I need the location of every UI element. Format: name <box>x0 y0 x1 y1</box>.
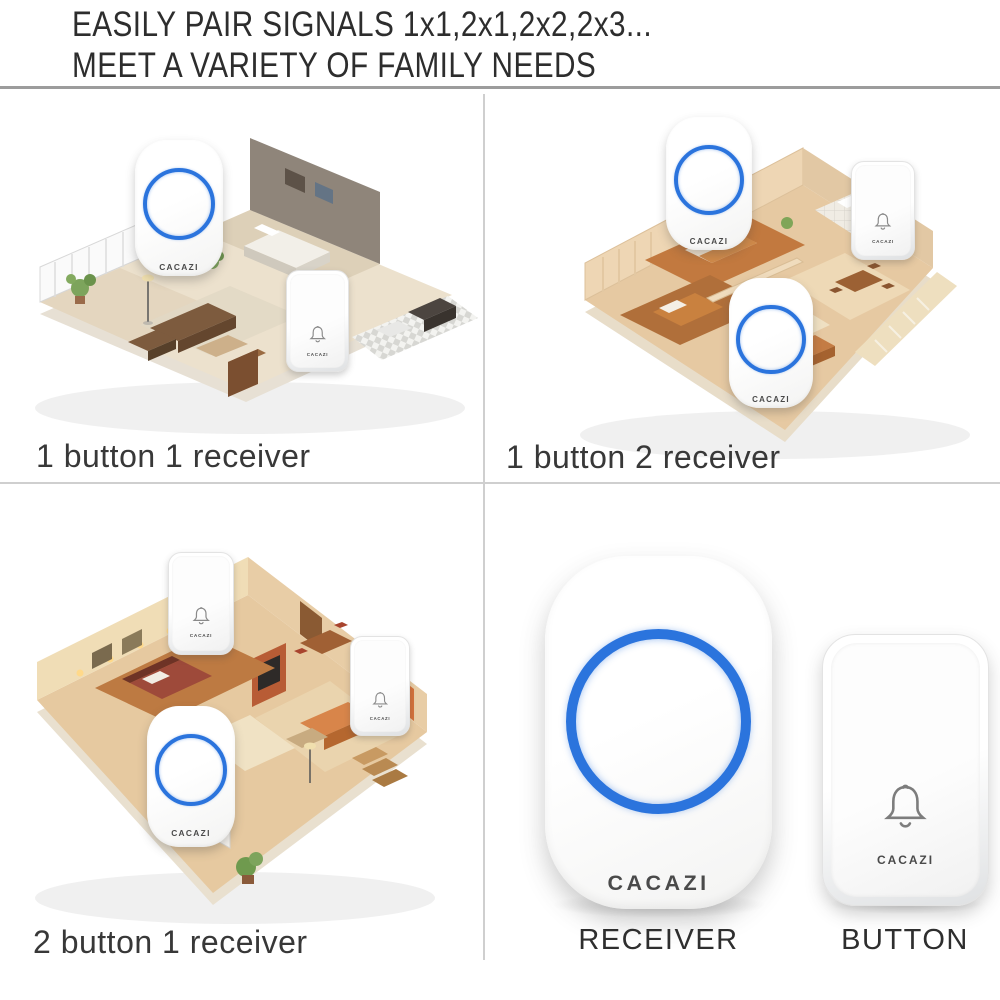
led-ring <box>143 168 215 240</box>
button-device: CACAZI <box>286 270 349 372</box>
receiver-product: CACAZI <box>545 556 772 909</box>
button-product: CACAZI <box>822 634 989 906</box>
led-ring <box>736 305 805 374</box>
brand-logo: CACAZI <box>370 716 390 721</box>
header-line-1: EASILY PAIR SIGNALS 1x1,2x1,2x2,2x3... <box>72 4 652 45</box>
brand-logo: CACAZI <box>877 853 934 867</box>
receiver-device: CACAZI <box>666 117 752 250</box>
brand-logo: CACAZI <box>690 237 729 246</box>
bell-icon <box>370 690 390 710</box>
floorplan-2x1 <box>0 483 484 959</box>
receiver-label: RECEIVER <box>545 924 772 957</box>
receiver-device: CACAZI <box>729 278 813 408</box>
bell-icon <box>872 211 894 233</box>
header-rule <box>0 86 1000 89</box>
button-device: CACAZI <box>168 552 234 655</box>
brand-logo: CACAZI <box>171 828 211 838</box>
caption-1x1: 1 button 1 receiver <box>36 438 311 475</box>
caption-2x1: 2 button 1 receiver <box>33 924 308 961</box>
led-ring <box>566 629 752 815</box>
led-ring <box>155 734 227 806</box>
brand-logo: CACAZI <box>307 352 328 357</box>
button-face: CACAZI <box>831 643 979 896</box>
brand-logo: CACAZI <box>752 395 790 404</box>
header: EASILY PAIR SIGNALS 1x1,2x1,2x2,2x3... M… <box>72 4 754 86</box>
brand-logo: CACAZI <box>872 239 894 244</box>
button-device: CACAZI <box>851 161 915 260</box>
brand-logo: CACAZI <box>607 870 709 896</box>
brand-logo: CACAZI <box>190 634 213 639</box>
header-line-2: MEET A VARIETY OF FAMILY NEEDS <box>72 45 652 86</box>
button-face: CACAZI <box>855 165 911 256</box>
bell-icon <box>307 324 328 345</box>
button-device: CACAZI <box>350 636 410 736</box>
bell-icon <box>877 779 934 836</box>
button-face: CACAZI <box>354 640 406 732</box>
product-infographic: EASILY PAIR SIGNALS 1x1,2x1,2x2,2x3... M… <box>0 0 1000 1000</box>
bell-icon <box>190 605 212 627</box>
led-ring <box>674 145 745 216</box>
brand-logo: CACAZI <box>159 262 199 272</box>
button-label: BUTTON <box>820 924 990 957</box>
caption-1x2: 1 button 2 receiver <box>506 439 781 476</box>
floorplan-1x1 <box>0 90 484 482</box>
receiver-device: CACAZI <box>147 706 235 847</box>
receiver-device: CACAZI <box>135 140 223 276</box>
button-face: CACAZI <box>290 274 345 368</box>
button-face: CACAZI <box>172 556 229 650</box>
